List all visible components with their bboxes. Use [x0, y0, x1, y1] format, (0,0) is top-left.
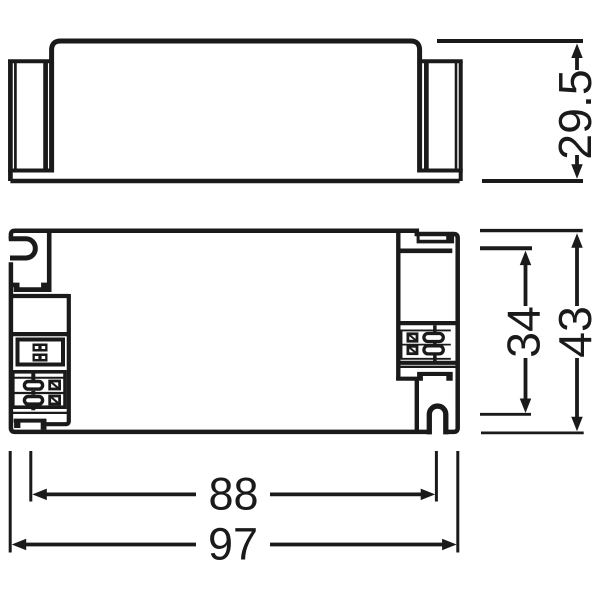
svg-text:88: 88: [208, 469, 258, 520]
svg-text:43: 43: [549, 306, 600, 358]
svg-text:97: 97: [208, 519, 258, 570]
svg-text:29.5: 29.5: [549, 69, 600, 160]
svg-text:34: 34: [498, 306, 550, 358]
